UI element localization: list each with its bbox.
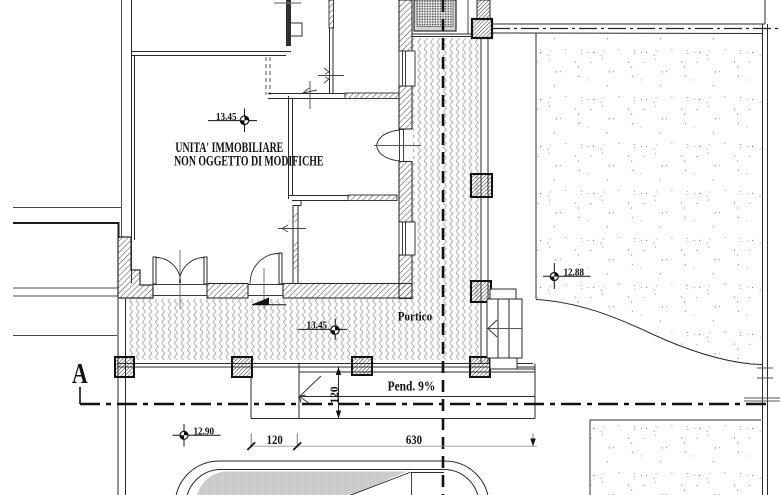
- svg-text:Portico: Portico: [398, 309, 432, 324]
- svg-text:120: 120: [329, 386, 341, 404]
- svg-text:Pend. 9%: Pend. 9%: [388, 379, 436, 394]
- svg-text:120: 120: [267, 433, 283, 447]
- svg-text:12.90: 12.90: [193, 426, 214, 438]
- svg-text:13.45: 13.45: [307, 320, 328, 332]
- svg-text:NON OGGETTO DI MODIFICHE: NON OGGETTO DI MODIFICHE: [174, 153, 323, 169]
- svg-text:13.45: 13.45: [216, 111, 237, 123]
- svg-text:12.88: 12.88: [563, 267, 584, 279]
- svg-text:630: 630: [406, 433, 422, 447]
- svg-text:A: A: [72, 357, 88, 390]
